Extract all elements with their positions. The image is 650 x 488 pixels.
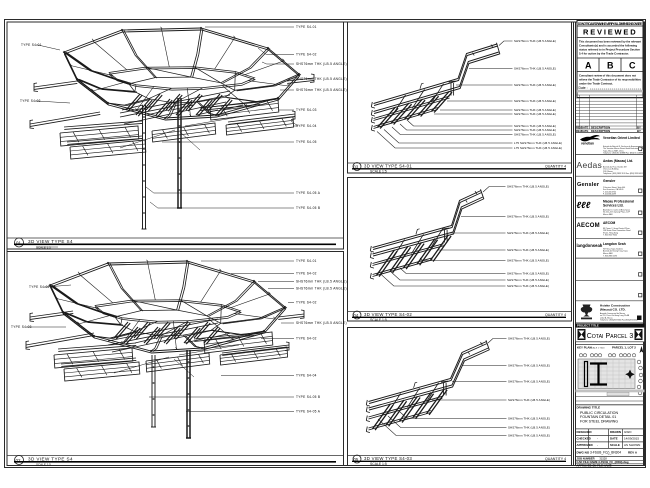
svg-text:TYPE S4-05 B: TYPE S4-05 B	[296, 395, 320, 399]
svg-text:PARCEL 1, LOT 2: PARCEL 1, LOT 2	[612, 346, 636, 350]
svg-text:SCALE 1:5: SCALE 1:5	[36, 245, 51, 249]
svg-text:T. 853 2883 2293: T. 853 2883 2293	[603, 256, 617, 258]
svg-text:SHS76mm THK (LB.5 ANGLE): SHS76mm THK (LB.5 ANGLE)	[514, 99, 556, 103]
svg-text:3D VIEW TYPE S4-01: 3D VIEW TYPE S4-01	[364, 164, 412, 169]
svg-text:SHS76mm THK (LB.5 ANGLE): SHS76mm THK (LB.5 ANGLE)	[508, 337, 550, 341]
svg-text:QUANTITY 4: QUANTITY 4	[545, 165, 566, 169]
svg-text:REV A: REV A	[628, 451, 638, 455]
svg-text:TYPE S4-03: TYPE S4-03	[296, 108, 317, 112]
svg-text:GWO: GWO	[624, 430, 632, 434]
svg-text:A: A	[585, 61, 592, 71]
svg-text:DO NOT SCALE DRAWING. VERIFY A: DO NOT SCALE DRAWING. VERIFY ALL DIMENSI…	[578, 22, 642, 26]
svg-text:FOR STEEL DRAWING: FOR STEEL DRAWING	[580, 419, 618, 423]
svg-text:QUANTITY 4: QUANTITY 4	[545, 313, 566, 317]
svg-text:AECOM: AECOM	[577, 223, 600, 229]
svg-text:APPROVED: APPROVED	[577, 443, 593, 447]
svg-text:3D VIEW TYPE S4-02: 3D VIEW TYPE S4-02	[364, 312, 412, 317]
svg-text:TYPE S4-01: TYPE S4-01	[296, 259, 317, 263]
svg-text:DWG NO: DWG NO	[577, 451, 590, 455]
svg-text:TYPE S4-02: TYPE S4-02	[20, 99, 41, 103]
svg-text:SHS76mm THK (LB.5 ANGLE): SHS76mm THK (LB.5 ANGLE)	[514, 128, 556, 132]
svg-text:DRAWN: DRAWN	[610, 430, 621, 434]
svg-text:-: -	[597, 443, 598, 447]
svg-text:SHS76mm THK (LB.5 ANGLE): SHS76mm THK (LB.5 ANGLE)	[514, 112, 556, 116]
svg-text:SHS76mm THK (LB.5 ANGLE): SHS76mm THK (LB.5 ANGLE)	[296, 287, 347, 291]
svg-text:SHS76mm THK (LB.5 ANGLE): SHS76mm THK (LB.5 ANGLE)	[514, 133, 556, 137]
svg-text:TYPE S4-01: TYPE S4-01	[21, 43, 42, 47]
svg-text:TYPE S4-03: TYPE S4-03	[11, 325, 32, 329]
svg-text:SHS76mm THK (LB.5 ANGLE): SHS76mm THK (LB.5 ANGLE)	[507, 259, 549, 263]
svg-text:Telephone: (853) 81 118888 F: Telephone: (853) 81 118888 Fax: (853) 81…	[603, 153, 643, 155]
svg-text:TYPE S4-02: TYPE S4-02	[296, 337, 317, 341]
svg-text:TYPE S4-02: TYPE S4-02	[296, 272, 317, 276]
svg-text:F. 415.836.4599: F. 415.836.4599	[603, 194, 616, 196]
svg-text:SHS76mm THK (LB.5 ANGLE): SHS76mm THK (LB.5 ANGLE)	[507, 284, 549, 288]
svg-text:SCALE 1:5: SCALE 1:5	[370, 462, 387, 466]
svg-text:SHS76mm THK (LB.5 ANGLE): SHS76mm THK (LB.5 ANGLE)	[507, 278, 549, 282]
svg-text:3-FSUB_FC()_BN304: 3-FSUB_FC()_BN304	[590, 451, 621, 455]
svg-text:SCALE 1:5: SCALE 1:5	[370, 170, 387, 174]
svg-text:SHS76mm THK (LB.5 ANGLE): SHS76mm THK (LB.5 ANGLE)	[514, 83, 556, 87]
svg-text:5.4 for action by the Trade Co: 5.4 for action by the Trade Contractor.	[579, 52, 629, 56]
svg-text:(Macau) CO. LTD.: (Macau) CO. LTD.	[600, 307, 626, 311]
svg-text:Langdon Seah: Langdon Seah	[603, 242, 626, 246]
svg-text:ℓℓℓ: ℓℓℓ	[577, 200, 591, 210]
svg-text:Macau SAR: Macau SAR	[603, 213, 613, 216]
svg-text:TYPE S4-05 B: TYPE S4-05 B	[296, 206, 320, 210]
svg-text:Aedas (Macau) Ltd.: Aedas (Macau) Ltd.	[603, 159, 633, 163]
svg-text:TYPE S4-04: TYPE S4-04	[296, 374, 317, 378]
svg-text:SHS76mm THK (LB.5 ANGLE): SHS76mm THK (LB.5 ANGLE)	[296, 77, 347, 81]
svg-text:Services Ltd.: Services Ltd.	[603, 203, 624, 207]
svg-text:Venetian Orient Limited: Venetian Orient Limited	[603, 136, 640, 140]
svg-text:DRAWING TITLE: DRAWING TITLE	[577, 405, 601, 409]
svg-text:Gensler: Gensler	[603, 179, 616, 183]
svg-text:TYPE S4-02: TYPE S4-02	[29, 285, 50, 289]
svg-text:3D VIEW TYPE S4: 3D VIEW TYPE S4	[28, 239, 73, 244]
svg-text:Macau SAR: Macau SAR	[603, 252, 613, 255]
svg-text:TYPE S4-02: TYPE S4-02	[296, 301, 317, 305]
svg-text:TYPE S4-04: TYPE S4-04	[296, 124, 317, 128]
svg-text:14/09/2015: 14/09/2015	[624, 437, 639, 441]
svg-text:DATE: DATE	[610, 437, 618, 441]
svg-text:SHS76mm THK (LB.5 ANGLE): SHS76mm THK (LB.5 ANGLE)	[296, 321, 347, 325]
svg-text:SHS76mm THK (LB.5 ANGLE): SHS76mm THK (LB.5 ANGLE)	[514, 39, 556, 43]
svg-text:SHS76mm THK (LB.5 ANGLE): SHS76mm THK (LB.5 ANGLE)	[507, 231, 549, 235]
svg-text:SHS76mm THK (LB.5 ANGLE): SHS76mm THK (LB.5 ANGLE)	[507, 215, 549, 219]
svg-text:-: -	[597, 437, 598, 441]
svg-text:Telephone: (853) 2833 1133 F: Telephone: (853) 2833 1133 Fax: (853) 28…	[603, 173, 643, 175]
svg-text:SHS76mm THK (LB.5 ANGLE): SHS76mm THK (LB.5 ANGLE)	[507, 272, 549, 276]
svg-text:SHS76mm THK (LB.5 ANGLE): SHS76mm THK (LB.5 ANGLE)	[507, 185, 549, 189]
svg-text:TYPE S4-05: TYPE S4-05	[296, 140, 317, 144]
svg-text:SHS76mm THK (LB.5 ANGLE): SHS76mm THK (LB.5 ANGLE)	[507, 248, 549, 252]
svg-text:SHS76mm THK (LB.5 ANGLE): SHS76mm THK (LB.5 ANGLE)	[296, 280, 347, 284]
svg-text:DESIGNED: DESIGNED	[577, 430, 592, 434]
svg-text:B: B	[607, 61, 614, 71]
svg-text:Telephone: (853)28723300 Fax: Telephone: (853)28723300 Fax:(853)287233…	[600, 320, 638, 322]
svg-text:L75 SHS76mm THK (LB.5 ANGLE): L75 SHS76mm THK (LB.5 ANGLE)	[514, 146, 562, 150]
svg-text:Aedas: Aedas	[577, 160, 603, 170]
svg-text:T. 852 3922 9000: T. 852 3922 9000	[603, 235, 617, 237]
svg-text:SHS76mm THK (LB.5 ANGLE): SHS76mm THK (LB.5 ANGLE)	[508, 434, 550, 438]
svg-text:3D VIEW TYPE S4: 3D VIEW TYPE S4	[28, 457, 73, 462]
svg-text:AECOM: AECOM	[603, 221, 616, 225]
svg-text:Gensler: Gensler	[577, 182, 600, 188]
svg-text:SCALE 1:5: SCALE 1:5	[370, 318, 387, 322]
svg-text:SHS76mm THK (LB.5 ANGLE): SHS76mm THK (LB.5 ANGLE)	[508, 364, 550, 368]
svg-text:SHS76mm THK (LB.5 ANGLE): SHS76mm THK (LB.5 ANGLE)	[508, 398, 550, 402]
svg-text:SHS76mm THK (LB.5 ANGLE): SHS76mm THK (LB.5 ANGLE)	[296, 62, 347, 66]
svg-text:TYPE S4-05 A: TYPE S4-05 A	[296, 191, 321, 195]
svg-text:COTAI PARCEL 3: COTAI PARCEL 3	[587, 333, 634, 340]
svg-text:C: C	[629, 61, 636, 71]
svg-text:SCALE 1:5: SCALE 1:5	[36, 463, 51, 467]
svg-text:TYPE S4-01: TYPE S4-01	[296, 25, 317, 29]
svg-text:TYPE S4-05 A: TYPE S4-05 A	[296, 410, 321, 414]
svg-text:SCALE: SCALE	[610, 443, 620, 447]
svg-text:AS SHOWN: AS SHOWN	[624, 443, 640, 447]
svg-text:APPROVED ON FILE NAME: APPROVED ON FILE NAME	[577, 464, 612, 468]
svg-text:TYPE S4-02: TYPE S4-02	[296, 53, 317, 57]
svg-text:Date :: Date :	[579, 86, 588, 90]
svg-text:SHS76mm THK (LB.5 ANGLE): SHS76mm THK (LB.5 ANGLE)	[508, 426, 550, 430]
svg-text:L75 SHS76mm THK (LB.5 ANGLE): L75 SHS76mm THK (LB.5 ANGLE)	[514, 141, 562, 145]
svg-text:SHS76mm THK (LB.5 ANGLE): SHS76mm THK (LB.5 ANGLE)	[514, 67, 556, 71]
svg-text:CHECKED: CHECKED	[577, 437, 591, 441]
svg-text:venetian: venetian	[581, 142, 594, 146]
svg-text:SHS76mm THK (LB.5 ANGLE): SHS76mm THK (LB.5 ANGLE)	[296, 88, 347, 92]
svg-text:QUANTITY 4: QUANTITY 4	[545, 457, 566, 461]
svg-text:langdonseah: langdonseah	[577, 243, 603, 248]
svg-text:3D VIEW TYPE S4-03: 3D VIEW TYPE S4-03	[364, 456, 412, 461]
svg-text:SHS76mm THK (LB.5 ANGLE): SHS76mm THK (LB.5 ANGLE)	[508, 417, 550, 421]
svg-text:SHS76mm THK (LB.5 ANGLE): SHS76mm THK (LB.5 ANGLE)	[508, 380, 550, 384]
svg-text:REVIEWED: REVIEWED	[583, 28, 637, 37]
svg-text:SCALE 1:7500: SCALE 1:7500	[590, 347, 605, 350]
